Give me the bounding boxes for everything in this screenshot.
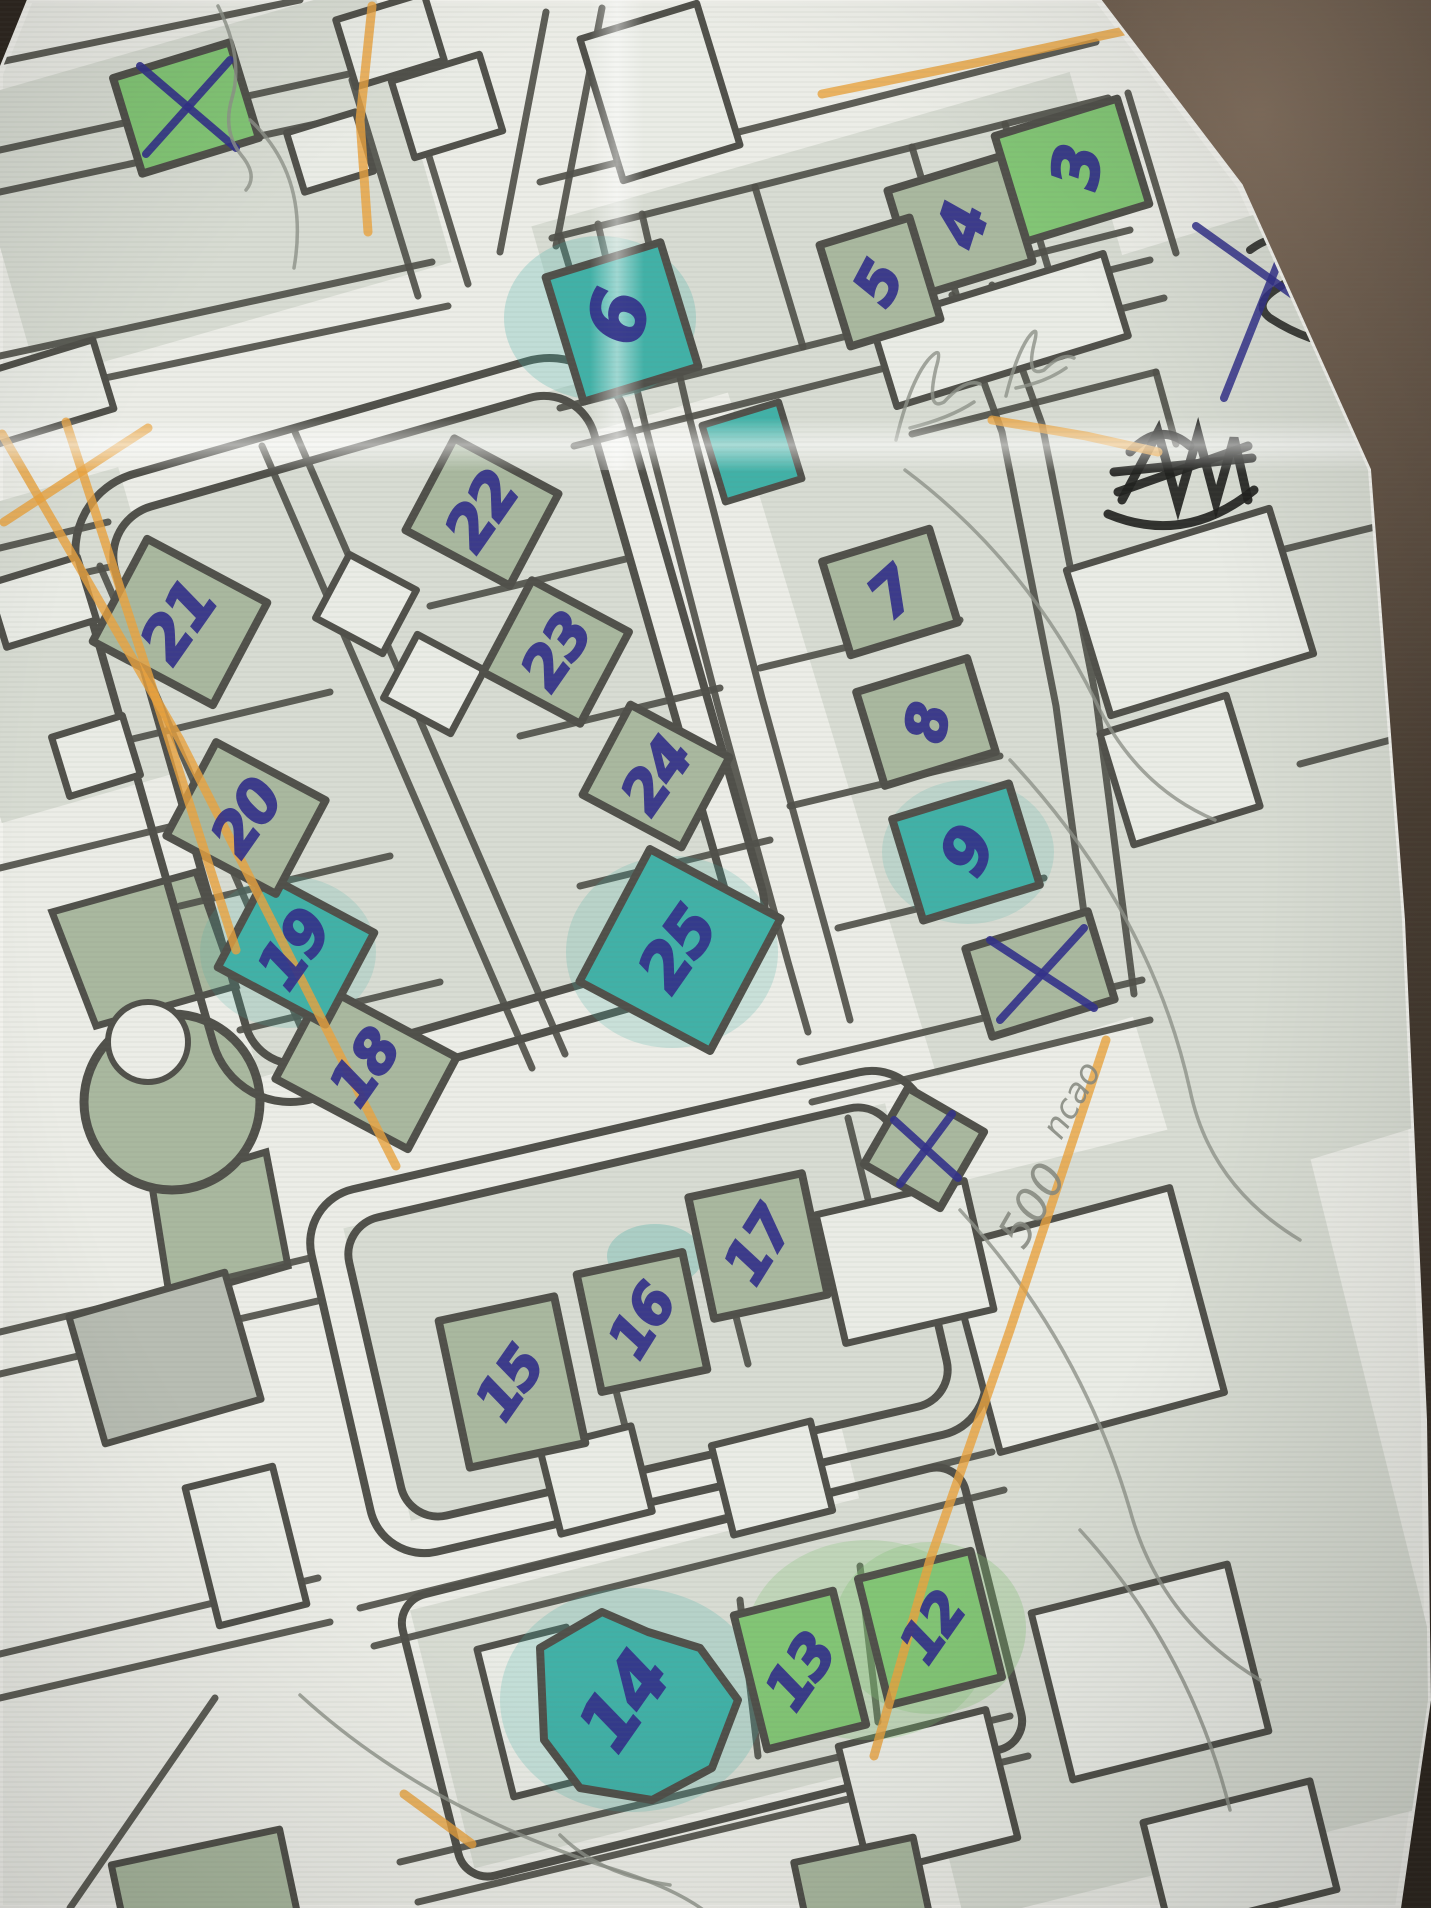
building xyxy=(711,1421,832,1535)
map-photo-svg: 34567891213141516171819202122232425ncao5… xyxy=(0,0,1431,1908)
park-pond xyxy=(108,1002,188,1082)
paper-crease-horizontal xyxy=(0,418,1431,472)
photo-of-annotated-map: 34567891213141516171819202122232425ncao5… xyxy=(0,0,1431,1908)
paper-crease-vertical xyxy=(590,0,644,470)
